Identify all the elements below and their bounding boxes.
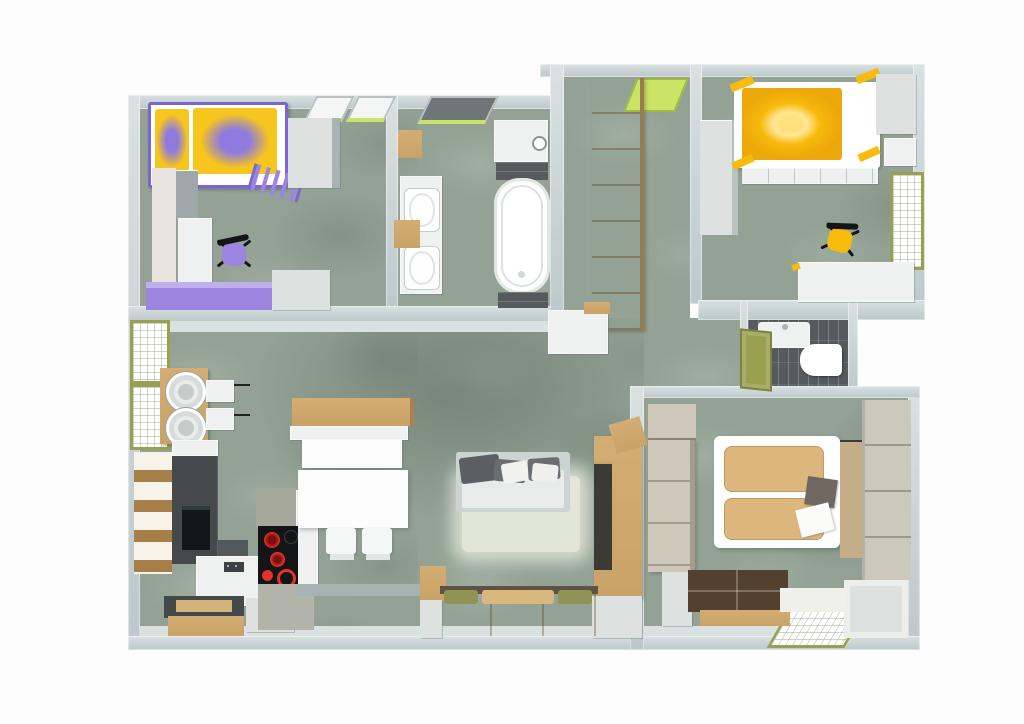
shower-faucet [532, 136, 547, 151]
wall-wc-right [848, 300, 858, 394]
chair-white [362, 528, 392, 554]
washer-dryer-tower [160, 368, 208, 444]
shelf-bracket [234, 414, 250, 416]
shelf-steps [700, 120, 738, 235]
shelf-box [884, 138, 916, 166]
double-bed [714, 436, 840, 548]
floor-plan-canvas [0, 0, 1024, 724]
sideboard-white [548, 310, 608, 354]
dining-bench-front [302, 440, 402, 468]
wall-shelf [206, 380, 234, 402]
wardrobe-right [862, 400, 911, 580]
bookcase-wood [594, 436, 642, 598]
hob-burner [264, 532, 280, 548]
bookcase-shelves [594, 462, 612, 570]
wall-face [138, 322, 562, 332]
wall-bath-hall-divider [550, 64, 564, 326]
wall-bedroom-bath-divider [386, 95, 398, 318]
bed-duvet-yellow-purple [193, 108, 277, 174]
hob-burner [270, 552, 285, 567]
bathtub [494, 178, 550, 294]
dark-chest [688, 570, 788, 612]
corner-wardrobe [876, 74, 916, 134]
dresser-purple [146, 282, 282, 310]
wardrobe [288, 118, 340, 188]
chair-base [330, 554, 354, 560]
sideboard-wood-cap [584, 302, 610, 314]
swivel-chair-purple [212, 232, 256, 276]
wardrobe-left [648, 440, 695, 572]
wc-faucet [782, 324, 788, 330]
wc-door-olive [740, 328, 772, 391]
induction-hob [258, 526, 298, 584]
cabinet-gray [176, 170, 198, 218]
sofa-cushion-white [531, 463, 559, 484]
bed-pillow-yellow [848, 90, 874, 156]
open-shelf-unit [134, 452, 172, 574]
counter-vent [224, 562, 244, 572]
bed-pillow [155, 109, 189, 173]
toilet [800, 344, 842, 376]
wood-cabinet [394, 220, 420, 248]
chair-white [326, 528, 356, 554]
bench-cushion-olive [444, 590, 478, 604]
sofa [456, 452, 570, 512]
kitchen-upper-cabinet [172, 440, 218, 456]
tile-strip [498, 292, 548, 308]
washer-drum [166, 372, 206, 412]
hob-burner [262, 570, 273, 581]
chair-seat [222, 243, 246, 266]
dresser [648, 404, 696, 441]
built-in-oven [182, 506, 210, 550]
washbasin-2 [404, 246, 440, 290]
hob-burner-off [284, 530, 298, 544]
bench-tan-inset [176, 600, 232, 612]
pillar-white [420, 600, 442, 638]
storage-box [272, 270, 330, 310]
floor-mat [780, 588, 846, 612]
bench-panel-tan [482, 590, 554, 604]
chair-backrest [826, 223, 858, 230]
bed-duvet-yellow [742, 88, 842, 160]
skylight-window-bath [417, 96, 499, 124]
window-yellow-bedroom [890, 172, 924, 270]
chest-wood-trim [700, 610, 790, 626]
window-sill [296, 584, 420, 596]
wall-master-top [630, 386, 920, 398]
dining-bench-seat [290, 426, 408, 440]
wall-yellowroom-bottom [698, 300, 925, 320]
desk-yellow-room [798, 262, 914, 302]
bookcase-base [592, 596, 642, 638]
bench-cushion-olive [558, 590, 592, 604]
shelf-bracket [234, 384, 250, 386]
tall-cabinet [152, 168, 176, 286]
desk [178, 218, 212, 284]
underbed-drawers [742, 168, 878, 184]
bedside-column [840, 440, 862, 558]
wall-shelf [206, 408, 234, 430]
wood-shelf [398, 130, 422, 158]
bench-wood-face [168, 616, 244, 636]
dining-bench-back [292, 398, 414, 426]
hall-wardrobe-wood [592, 78, 644, 330]
cabinet-lowerright [844, 580, 908, 638]
dining-table [298, 470, 408, 528]
chair-base [366, 554, 390, 560]
